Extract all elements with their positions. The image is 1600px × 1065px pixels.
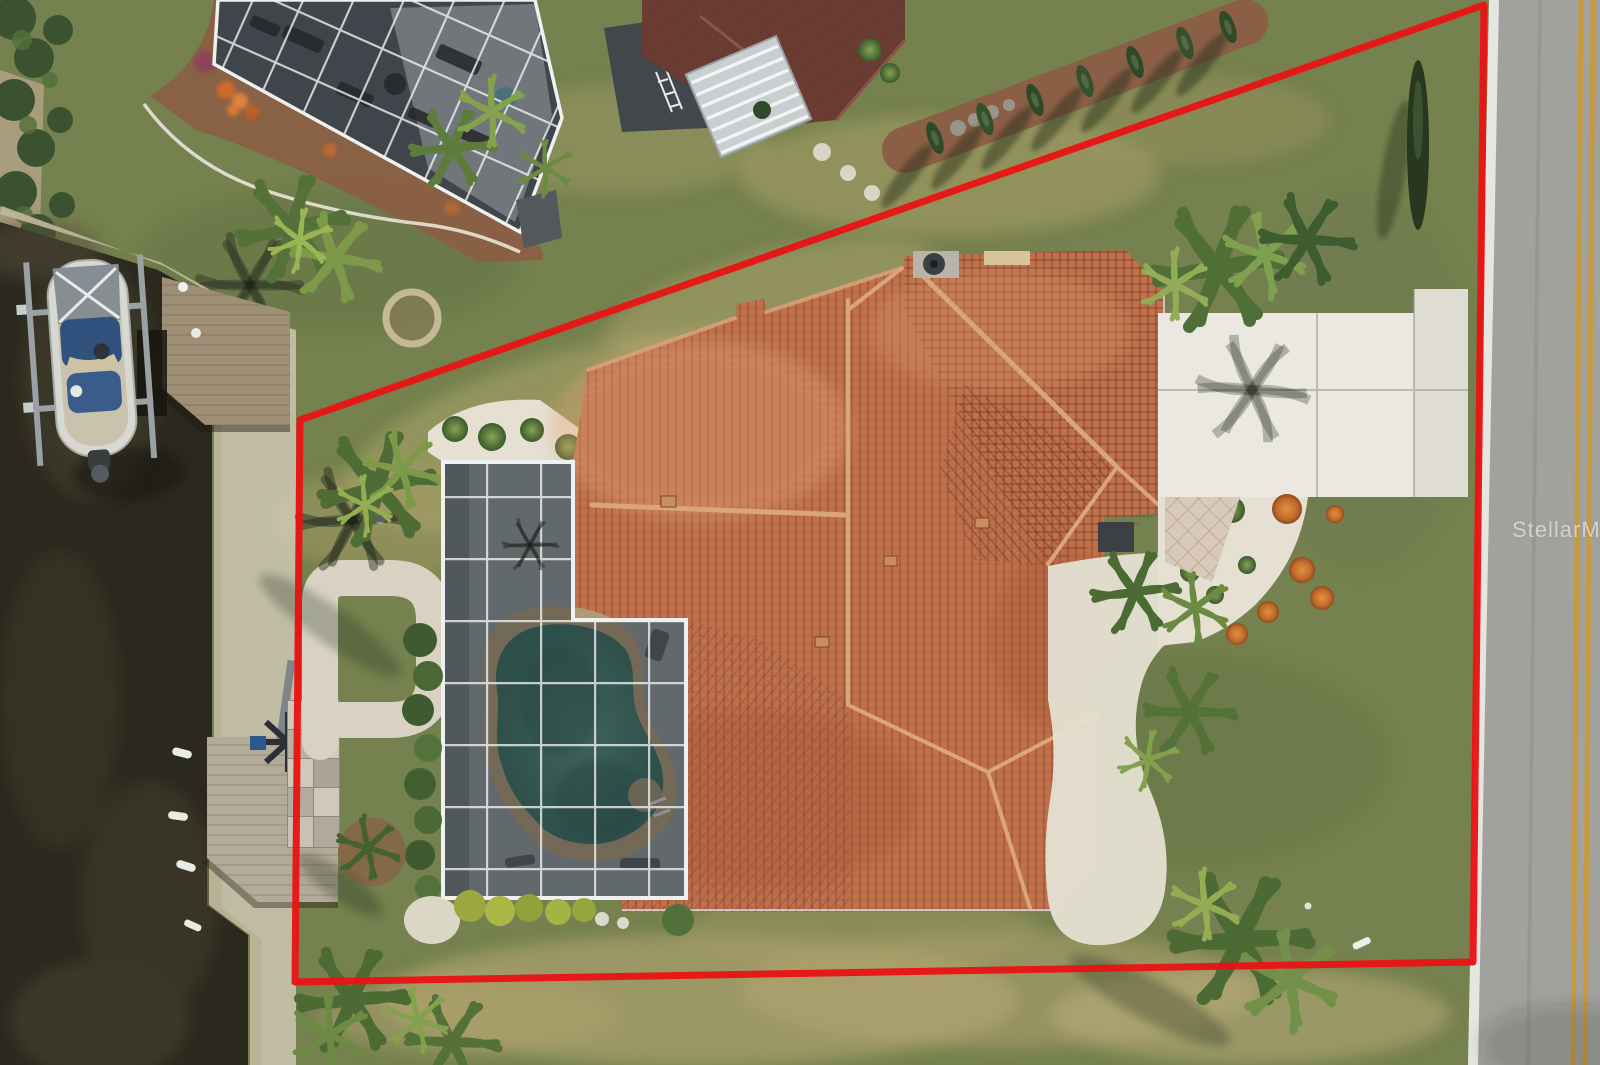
equipment-pad [516, 190, 562, 248]
aerial-scene [0, 0, 1600, 1065]
watermark: StellarMLS [1512, 517, 1600, 543]
entry-shadow [1098, 522, 1134, 552]
planter-ring [386, 292, 438, 344]
canal [0, 206, 340, 1065]
aerial-property-photo: StellarMLS [0, 0, 1600, 1065]
